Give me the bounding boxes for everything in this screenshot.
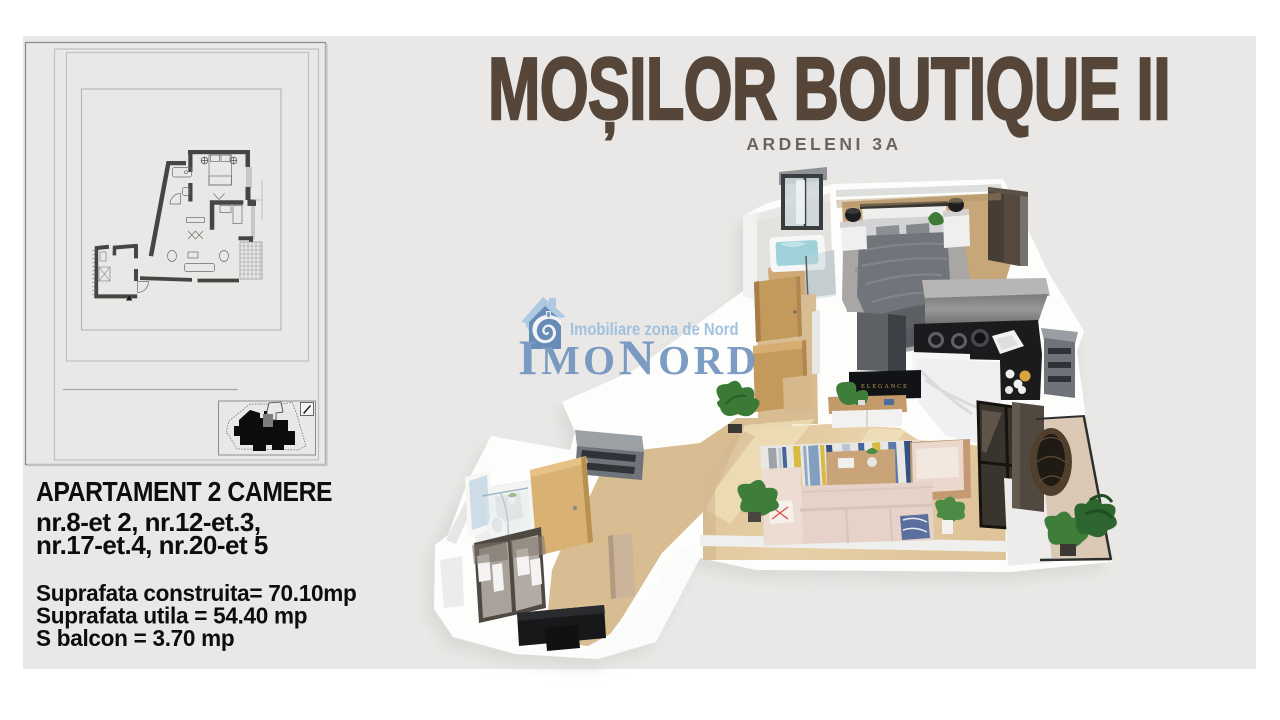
svg-text:nr.17-et.4, nr.20-et 5: nr.17-et.4, nr.20-et 5 xyxy=(36,530,268,560)
svg-text:ELEGANCE: ELEGANCE xyxy=(861,384,909,390)
svg-text:APARTAMENT 2 CAMERE: APARTAMENT 2 CAMERE xyxy=(36,476,332,508)
svg-text:IMONORD: IMONORD xyxy=(518,329,760,385)
svg-text:MOȘILOR BOUTIQUE II: MOȘILOR BOUTIQUE II xyxy=(488,41,1170,140)
svg-text:ARDELENI 3A: ARDELENI 3A xyxy=(746,134,901,154)
svg-text:S balcon = 3.70 mp: S balcon = 3.70 mp xyxy=(36,625,235,652)
